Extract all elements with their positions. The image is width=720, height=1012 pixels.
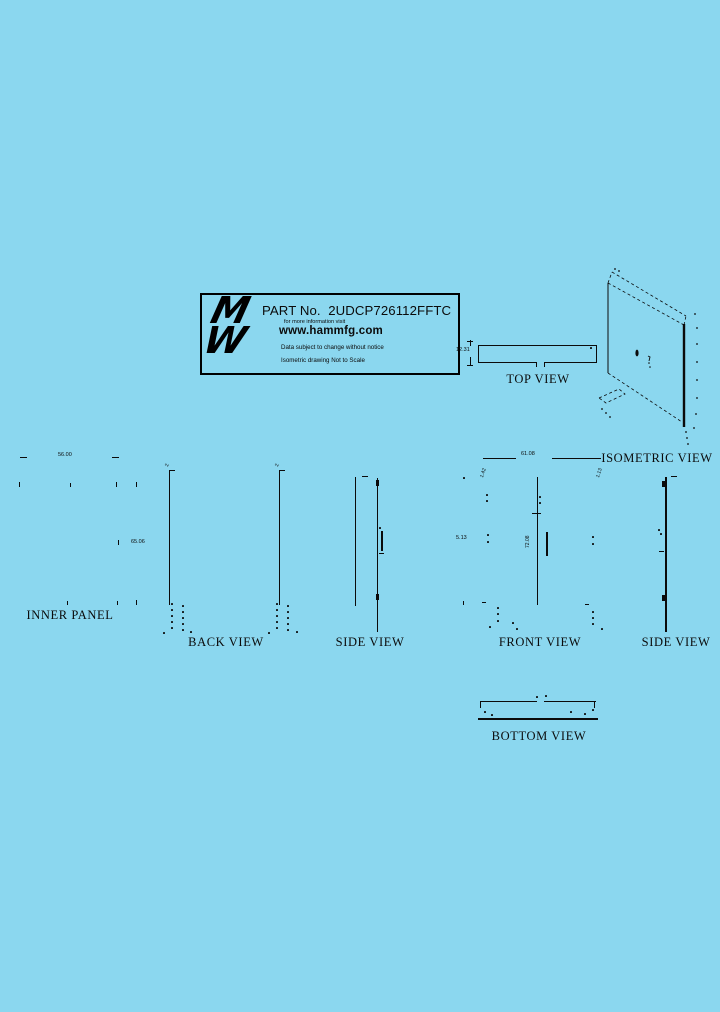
top-view-label: TOP VIEW [506,372,569,387]
drawing-line [481,701,537,702]
drawing-dot [276,627,278,629]
inner-panel-label: INNER PANEL [26,608,113,623]
front-view-panel-dim: 5.13 [456,536,467,542]
drawing-line [478,718,598,720]
drawing-dot [182,611,184,613]
drawing-line [279,470,285,471]
drawing-line [546,532,548,556]
drawing-line [544,362,545,367]
front-view-width-dim: 61.08 [521,452,535,458]
drawing-dot [182,617,184,619]
drawing-line [671,476,677,477]
drawing-line [381,531,383,551]
drawing-dot [287,605,289,607]
drawing-dot [171,603,173,605]
drawing-dot [592,709,594,711]
drawing-line [20,457,27,458]
top-view-depth-dim: 12.31 [456,348,470,354]
inner-panel-height-dim: 65.06 [131,540,145,546]
side-view-right-label: SIDE VIEW [642,635,711,650]
drawing-dot [276,609,278,611]
back-view-label: BACK VIEW [188,635,264,650]
drawing-line [379,553,384,554]
drawing-dot [497,613,499,615]
drawing-dot [287,629,289,631]
drawing-dot [268,632,270,634]
drawing-line [67,601,68,605]
drawing-dot [584,713,586,715]
drawing-line [480,701,481,708]
front-view-right-corner-dim: 1.13 [596,468,604,479]
drawing-line [362,476,368,477]
drawing-line [355,477,356,606]
drawing-dot [484,711,486,713]
drawing-line [596,345,597,363]
drawing-dot [182,605,184,607]
drawing-line [169,470,170,605]
drawing-line [112,457,119,458]
drawing-line [467,365,473,366]
website-text: www.hammfg.com [279,325,383,337]
drawing-line [470,357,471,365]
drawing-dot [296,631,298,633]
isometric-view-drawing [595,262,707,457]
drawing-line [478,345,479,363]
drawing-line [665,477,667,632]
front-view-label: FRONT VIEW [499,635,581,650]
drawing-line [117,601,118,605]
drawing-line [136,482,137,487]
drawing-dot [592,617,594,619]
drawing-dot [276,615,278,617]
drawing-dot [287,623,289,625]
drawing-line [463,601,464,605]
drawing-dot [491,714,493,716]
drawing-line [478,362,536,363]
drawing-dot [163,632,165,634]
drawing-dot [486,494,488,496]
drawing-line [169,470,175,471]
drawing-dot [182,623,184,625]
inner-panel-width-dim: 56.00 [58,453,72,459]
drawing-line [376,480,379,486]
door-handle-icon [635,350,638,357]
drawing-dot [592,536,594,538]
title-block: M W PART No. 2UDCP726112FFTC for more in… [200,293,460,375]
front-view-left-corner-dim: 1.42 [480,468,488,479]
drawing-dot [570,711,572,713]
drawing-line [136,600,137,605]
drawing-dot [497,620,499,622]
back-view-right-corner-dim: 2 [275,463,281,467]
drawing-dot [497,607,499,609]
drawing-line [544,701,596,702]
disclaimer-text: Data subject to change without notice [281,344,384,351]
drawing-line [659,551,664,552]
drawing-dot [516,628,518,630]
drawing-dot [658,529,660,531]
drawing-dot [276,603,278,605]
drawing-dot [486,500,488,502]
drawing-line [536,362,537,367]
drawing-dot [171,615,173,617]
drawing-dot [592,611,594,613]
drawing-dot [463,477,465,479]
drawing-line [19,482,20,487]
drawing-dot [171,621,173,623]
drawing-dot [287,617,289,619]
drawing-line [594,701,595,708]
drawing-line [377,478,378,632]
drawing-line [376,594,379,600]
drawing-dot [489,626,491,628]
part-number: PART No. 2UDCP726112FFTC [262,303,451,318]
drawing-dot [590,347,592,349]
drawing-line [662,595,665,601]
drawing-dot [592,623,594,625]
drawing-line [585,604,589,605]
front-view-height-dim: 72.08 [526,535,531,548]
drawing-line [545,362,597,363]
drawing-dot [545,695,547,697]
drawing-dot [182,629,184,631]
side-view-left-label: SIDE VIEW [336,635,405,650]
logo-letter-w: W [201,326,264,356]
drawing-dot [190,631,192,633]
drawing-dot [512,622,514,624]
drawing-dot [487,541,489,543]
drawing-line [483,458,516,459]
drawing-dot [379,527,381,529]
drawing-line [70,483,71,487]
drawing-dot [592,543,594,545]
drawing-line [662,481,665,487]
drawing-dot [171,627,173,629]
bottom-view-label: BOTTOM VIEW [492,729,587,744]
drawing-line [478,345,597,346]
drawing-dot [539,502,541,504]
drawing-sheet: M W PART No. 2UDCP726112FFTC for more in… [0,0,720,1012]
drawing-dot [287,611,289,613]
drawing-line [552,458,601,459]
drawing-dot [171,609,173,611]
drawing-line [470,340,471,346]
drawing-dot [487,534,489,536]
drawing-dot [536,696,538,698]
drawing-line [279,470,280,605]
scale-note-text: Isometric drawing Not to Scale [281,357,365,364]
drawing-dot [276,621,278,623]
drawing-line [116,482,117,487]
drawing-dot [660,533,662,535]
drawing-line [532,513,541,514]
drawing-line [118,540,119,545]
drawing-dot [539,496,541,498]
back-view-left-corner-dim: 2 [165,463,171,467]
drawing-dot [601,628,603,630]
hammond-logo-icon: M W [198,296,271,366]
drawing-line [482,602,486,603]
